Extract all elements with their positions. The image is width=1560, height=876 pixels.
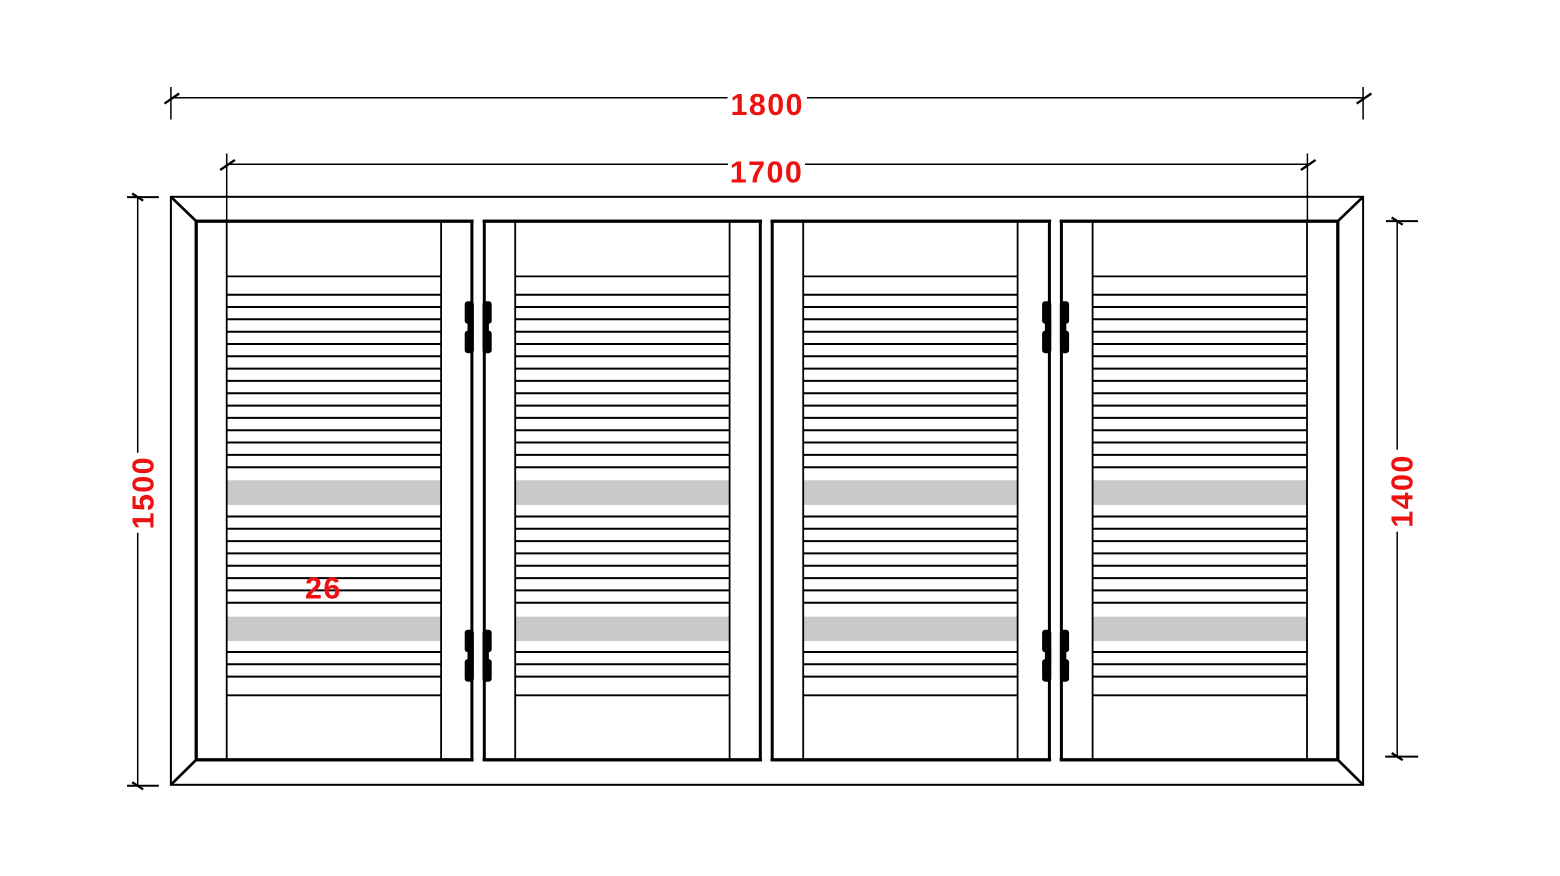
- svg-text:1400: 1400: [1385, 454, 1419, 527]
- svg-text:1800: 1800: [730, 88, 803, 122]
- svg-text:26: 26: [305, 572, 342, 606]
- svg-text:1500: 1500: [126, 456, 160, 529]
- svg-text:1700: 1700: [730, 156, 803, 190]
